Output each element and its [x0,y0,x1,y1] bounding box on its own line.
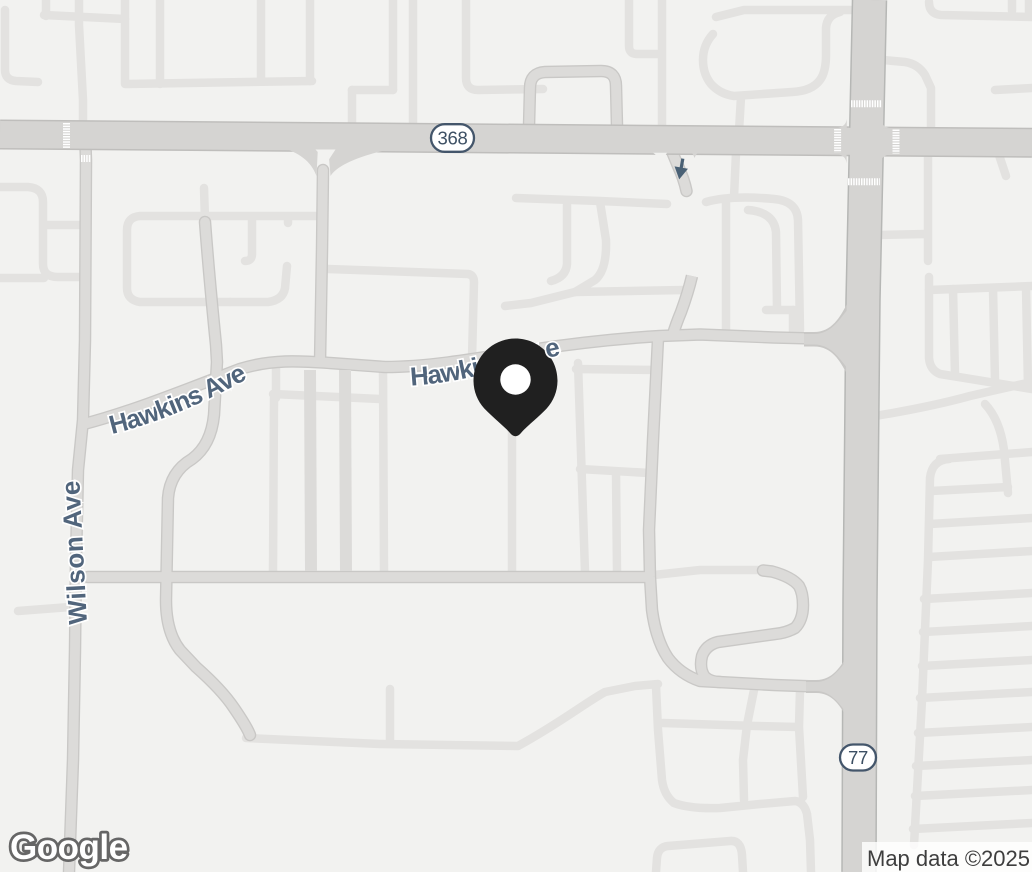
svg-text:368: 368 [438,128,468,149]
svg-text:Map data ©2025: Map data ©2025 [867,846,1030,871]
svg-text:Google: Google [10,828,128,867]
svg-text:77: 77 [848,747,868,768]
